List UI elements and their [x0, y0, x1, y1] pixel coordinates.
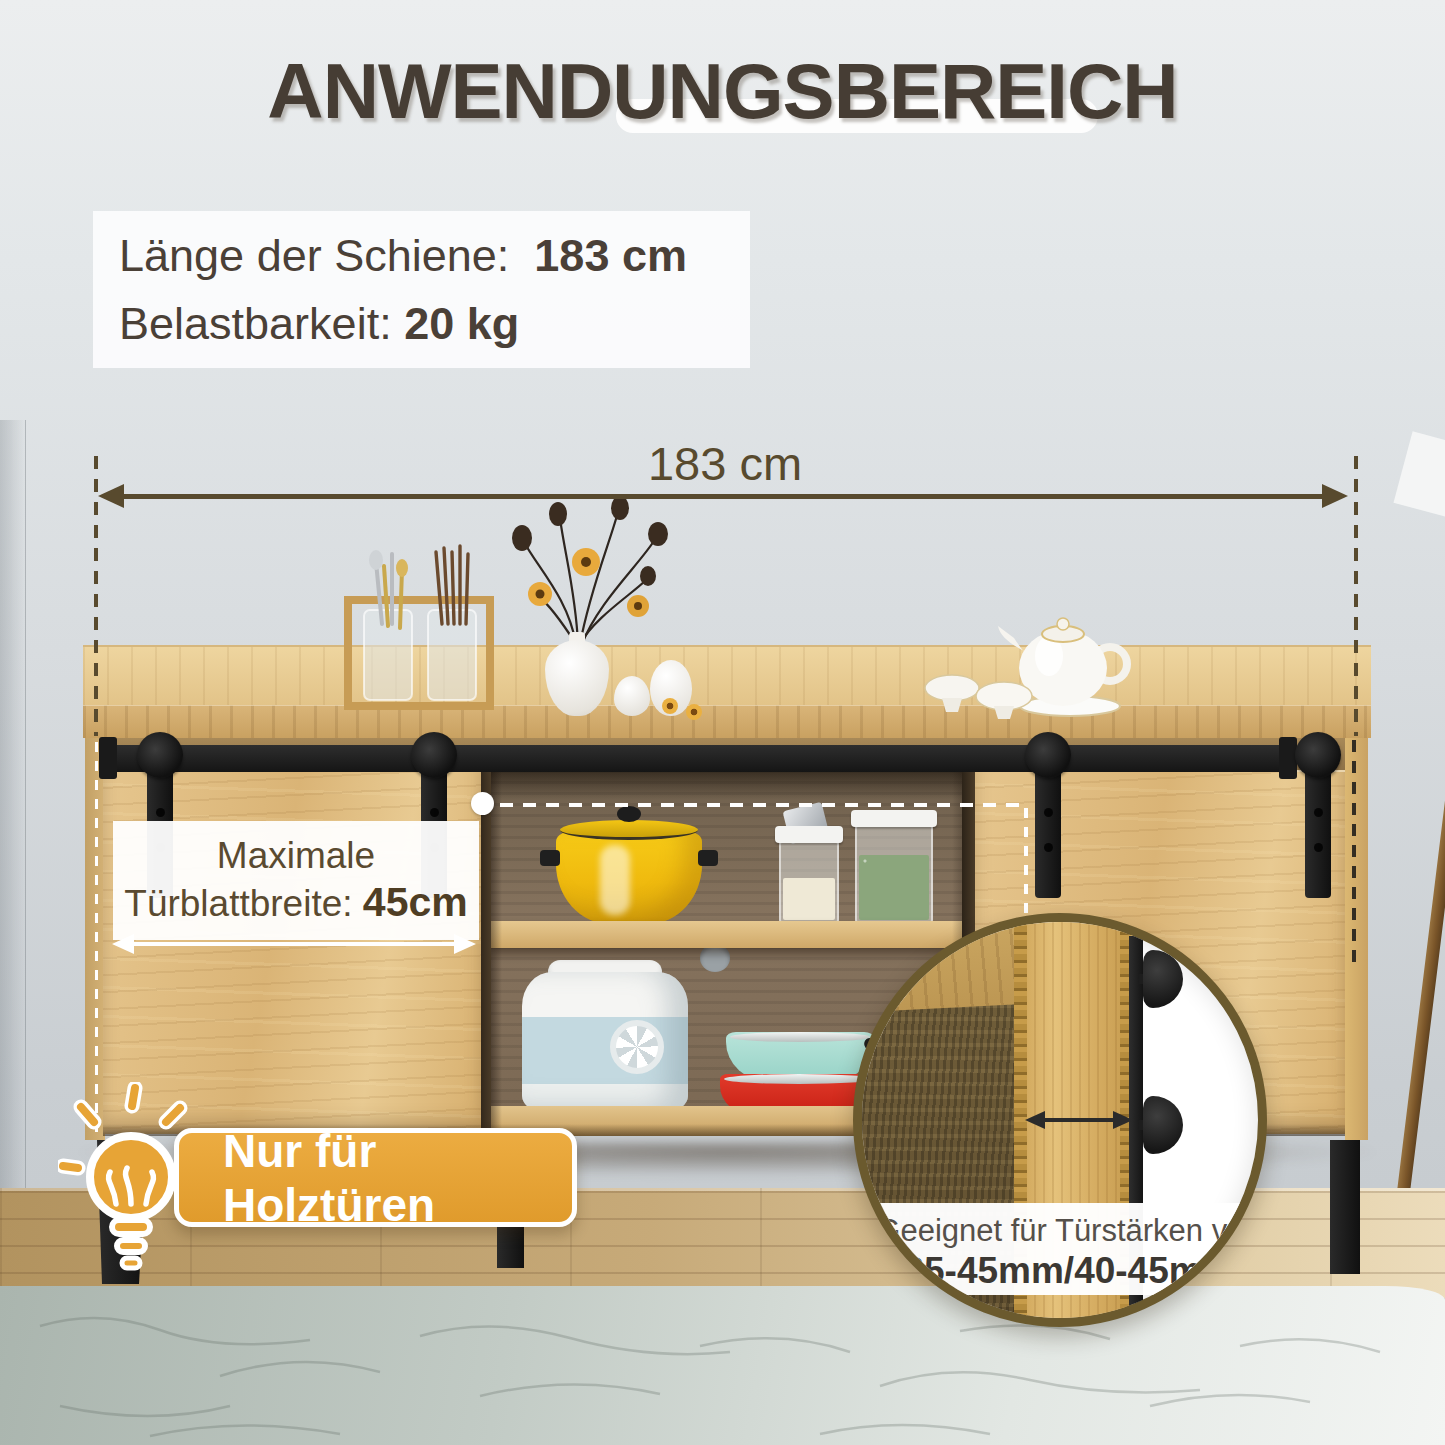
pot-handle-left	[540, 850, 560, 866]
leaning-canvas	[1393, 431, 1445, 519]
inset-line1: Geeignet für Türstärken von	[862, 1211, 1267, 1251]
beans-canister-lid	[851, 810, 937, 827]
cutlery-caddy	[336, 544, 502, 716]
dashed-guide-right-lower	[1352, 740, 1356, 962]
door-outline-dash-left	[95, 742, 98, 1132]
cabinet-leg	[1330, 1140, 1360, 1274]
inset-line2: 35-45mm/40-45mm	[903, 1250, 1234, 1291]
pot-handle-right	[698, 850, 718, 866]
compartment-top-shadow	[488, 770, 974, 800]
door-width-label: Maximale Türblattbreite: 45cm	[113, 821, 479, 940]
mini-flower	[686, 704, 702, 720]
dimension-arrowhead-left	[98, 484, 124, 508]
dashed-guide-right	[1354, 456, 1358, 736]
rail-end-cap-left	[99, 737, 117, 779]
door-width-line1: Maximale	[113, 833, 479, 879]
cabinet-right-side	[1345, 738, 1368, 1140]
yellow-pot-knob	[617, 806, 641, 822]
wall-corner-shade	[0, 420, 26, 1200]
door-thickness-inset: Geeignet für Türstärken von 35-45mm/40-4…	[853, 913, 1267, 1327]
door-outline-dash-top	[500, 803, 1028, 807]
rail-length-dimension: 183 cm	[560, 436, 890, 491]
cabinet-top-front-edge	[83, 705, 1371, 738]
door-hanger-roller	[137, 732, 183, 778]
tea-set	[918, 600, 1148, 720]
spec-info-box: Länge der Schiene: 183 cm Belastbarkeit:…	[93, 211, 750, 368]
yellow-pot-highlight	[600, 845, 630, 915]
door-hanger-roller	[1295, 732, 1341, 778]
dimension-arrow-line	[120, 494, 1326, 499]
door-outline-dash-vertical	[1024, 808, 1028, 918]
lightbulb-icon	[58, 1082, 208, 1277]
page-title: ANWENDUNGSBEREICH	[0, 46, 1445, 137]
yellow-pot-lid	[560, 820, 698, 840]
barn-door-rail	[103, 745, 1293, 772]
door-hanger-strap	[1035, 762, 1061, 898]
rice-jar-lid	[775, 826, 843, 843]
mini-flower	[662, 698, 678, 714]
middle-shelf	[490, 921, 972, 948]
door-hanger-roller	[411, 732, 457, 778]
white-vase-small	[614, 676, 650, 716]
spec-line-load-capacity: Belastbarkeit: 20 kg	[119, 298, 750, 350]
holztueren-badge: Nur für Holztüren	[174, 1128, 577, 1227]
inset-roller	[1143, 950, 1183, 1008]
door-width-arrowhead-right	[454, 934, 476, 954]
cabinet-top-surface	[83, 645, 1371, 707]
door-width-arrow	[132, 942, 456, 946]
thickness-arrowhead-left	[1025, 1111, 1045, 1129]
rug-texture	[0, 1286, 1445, 1445]
cable-hole	[700, 944, 730, 972]
door-hanger-strap	[1305, 762, 1331, 898]
beans-canister	[855, 824, 933, 924]
thickness-arrowhead-right	[1113, 1111, 1133, 1129]
wooden-easel-leg	[1396, 797, 1445, 1201]
rice-jar	[779, 840, 839, 924]
rug	[0, 1286, 1445, 1445]
thickness-arrow	[1043, 1118, 1115, 1122]
door-width-line2: Türblattbreite: 45cm	[113, 879, 479, 927]
guide-dot	[471, 792, 494, 815]
rice-cooker-dial	[610, 1020, 664, 1074]
badge-label: Nur für Holztüren	[223, 1124, 572, 1232]
product-infographic: 183 cm Maximale Türblattbreite: 45cm Nur…	[0, 0, 1445, 1445]
inset-roller	[1143, 1096, 1183, 1154]
dimension-arrowhead-right	[1322, 484, 1348, 508]
door-width-arrowhead-left	[112, 934, 134, 954]
door-hanger-roller	[1025, 732, 1071, 778]
spec-line-rail-length: Länge der Schiene: 183 cm	[119, 230, 750, 282]
